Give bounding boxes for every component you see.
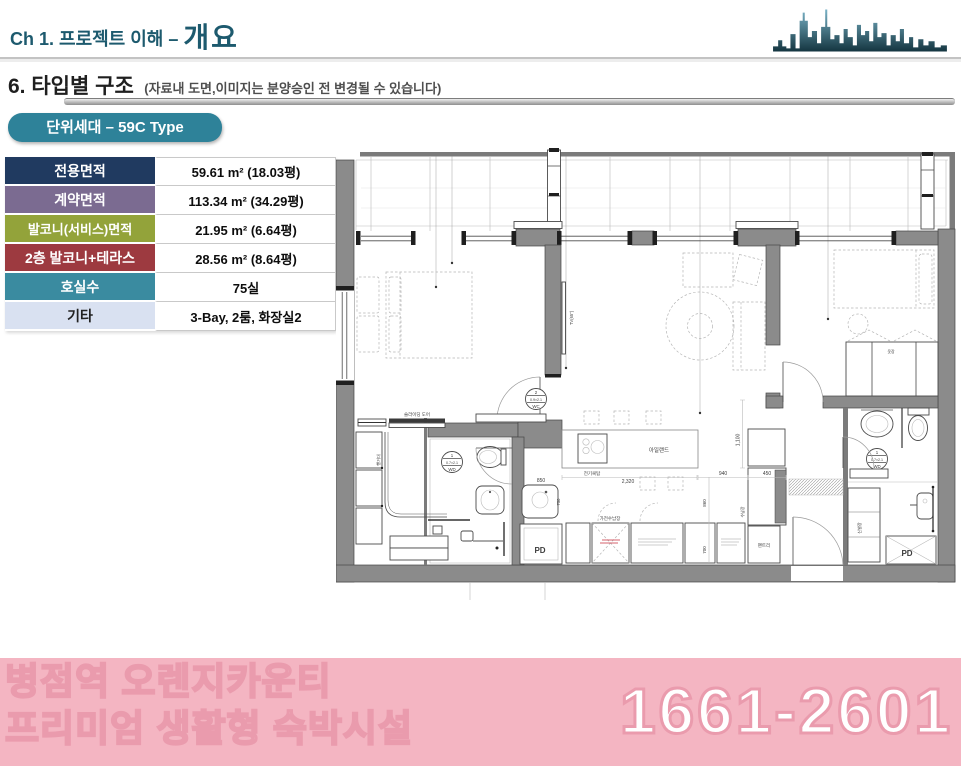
section-rule <box>64 98 955 105</box>
entry-mat <box>789 479 843 495</box>
sink2-icon <box>861 410 893 437</box>
chapter-emph: 개요 <box>183 22 239 53</box>
table-row: 전용면적 59.61 m² (18.03평) <box>5 157 336 186</box>
living-room: TV(65") 2 0.9×2.1 WC <box>476 253 765 422</box>
bedroom2: 옷장 <box>783 250 938 402</box>
dim-940: 940 <box>719 471 728 477</box>
spec-value-room-count: 75실 <box>155 273 336 302</box>
page-title: Ch 1. 프로젝트 이해 – 개요 <box>10 16 239 56</box>
header: Ch 1. 프로젝트 이해 – 개요 <box>0 0 961 59</box>
dim-1100: 1,100 <box>736 434 742 447</box>
spec-label-etc: 기타 <box>5 302 155 331</box>
svg-text:WC: WC <box>532 404 539 409</box>
pantry: 팬트리 <box>748 526 780 563</box>
pantry-label: 팬트리 <box>758 542 770 549</box>
sliding-door-label: 슬라이딩 도어 <box>404 411 430 418</box>
floor-plan: TV(65") 2 0.9×2.1 WC <box>336 140 961 605</box>
project-name-line1: 병점역 오렌지카운티 <box>5 658 413 705</box>
chapter-text: Ch 1. 프로젝트 이해 – <box>10 29 178 49</box>
dim-2320: 2,320 <box>622 479 635 485</box>
svg-text:WD: WD <box>448 467 455 472</box>
svg-text:0.7×2.1: 0.7×2.1 <box>446 461 458 465</box>
dim-860: 860 <box>702 499 707 507</box>
slide: Ch 1. 프로젝트 이해 – 개요 6. 타입별 구조 (자료내 도면,이미지… <box>0 0 961 766</box>
table-row: 계약면적 113.34 m² (34.29평) <box>5 186 336 215</box>
appliance-cabinet-label: 가전수납장 <box>600 515 621 522</box>
project-name: 병점역 오렌지카운티 프리미엄 생활형 숙박시설 <box>5 658 413 752</box>
project-name-line2: 프리미엄 생활형 숙박시설 <box>5 705 413 752</box>
city-skyline-icon <box>771 6 951 54</box>
spec-label-room-count: 호실수 <box>5 273 155 302</box>
dim-750: 750 <box>556 498 561 506</box>
window-piers <box>356 231 896 245</box>
windows <box>361 236 892 241</box>
dim-extension-lines <box>470 582 545 600</box>
table-row: 2층 발코니+테라스 28.56 m² (8.64평) <box>5 244 336 273</box>
sink-icon <box>522 485 558 518</box>
storage-label: 수납장 <box>739 506 745 517</box>
island-label: 아일랜드 <box>649 446 669 454</box>
door-tag-wd1: 1 0.7×2.1 WD <box>442 452 463 473</box>
spec-value-exclusive-area: 59.61 m² (18.03평) <box>155 157 336 186</box>
spec-value-terrace-area: 28.56 m² (8.64평) <box>155 244 336 273</box>
wardrobe-label: 옷장 <box>887 348 895 354</box>
cooktop-icon <box>578 434 607 463</box>
toilet2-icon <box>908 408 929 441</box>
section-note: (자료내 도면,이미지는 분양승인 전 변경될 수 있습니다) <box>144 81 441 96</box>
floor-plan-drawing: TV(65") 2 0.9×2.1 WC <box>336 140 961 605</box>
tv-label: TV(65") <box>569 310 574 325</box>
table-row: 발코니(서비스)면적 21.95 m² (6.64평) <box>5 215 336 244</box>
basin-icon <box>476 486 504 514</box>
dim-700: 700 <box>702 546 707 554</box>
shoe-cabinet-label: 신발장 <box>856 522 862 534</box>
footer-banner: 병점역 오렌지카운티 프리미엄 생활형 숙박시설 1661-2601 <box>0 658 961 766</box>
phone-number: 1661-2601 <box>620 674 953 748</box>
shoe-cabinet: 신발장 <box>848 488 880 562</box>
spec-value-contract-area: 113.34 m² (34.29평) <box>155 186 336 215</box>
spec-label-contract-area: 계약면적 <box>5 186 155 215</box>
wardrobe: 옷장 <box>846 330 938 396</box>
cooktop-label: 전기쿡탑 <box>584 470 601 477</box>
hanger-label: 행거대 <box>375 454 382 466</box>
table-row: 호실수 75실 <box>5 273 336 302</box>
table-row: 기타 3-Bay, 2룸, 화장실2 <box>5 302 336 331</box>
lower-cabinets: 가전수납장 팬트리 수납장 940 450 1,100 860 700 <box>566 400 786 563</box>
dim-850: 850 <box>537 478 546 484</box>
spec-label-balcony-area: 발코니(서비스)면적 <box>5 215 155 244</box>
spec-label-exclusive-area: 전용면적 <box>5 157 155 186</box>
pd-shaft-1: PD <box>520 524 562 564</box>
spec-value-etc: 3-Bay, 2룸, 화장실2 <box>155 302 336 331</box>
dim-450: 450 <box>763 471 772 477</box>
pd-shaft-2: PD <box>886 536 936 564</box>
hall-cabinet: 수납장 <box>739 429 786 525</box>
bedroom1 <box>357 272 472 358</box>
toilet-icon <box>477 447 506 468</box>
pd-label-2: PD <box>901 549 912 558</box>
spec-table: 전용면적 59.61 m² (18.03평) 계약면적 113.34 m² (3… <box>5 157 336 331</box>
svg-text:0.9×2.1: 0.9×2.1 <box>530 398 542 402</box>
door-tag-wc: 2 0.9×2.1 WC <box>526 389 547 410</box>
spec-value-balcony-area: 21.95 m² (6.64평) <box>155 215 336 244</box>
section-title: 6. 타입별 구조 <box>8 75 134 98</box>
svg-text:WD: WD <box>873 464 880 469</box>
section-heading: 6. 타입별 구조 (자료내 도면,이미지는 분양승인 전 변경될 수 있습니다… <box>8 70 441 100</box>
pd-label-1: PD <box>534 546 545 555</box>
spec-label-terrace-area: 2층 발코니+테라스 <box>5 244 155 273</box>
unit-type-badge: 단위세대 – 59C Type <box>8 113 222 142</box>
